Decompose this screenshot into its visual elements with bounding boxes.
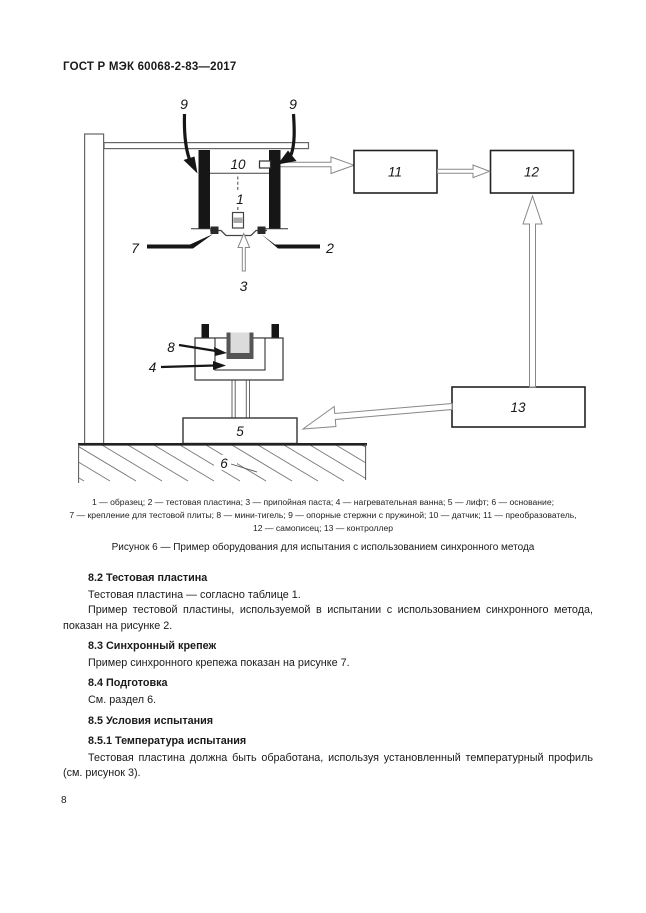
label-10: 10 <box>230 157 246 172</box>
stand-column <box>85 134 104 444</box>
leader-arrow-9-left <box>184 114 190 162</box>
label-9-right: 9 <box>289 96 297 112</box>
label-9-left: 9 <box>180 96 188 112</box>
specimen-band <box>234 218 243 224</box>
leader-line-4 <box>161 366 214 368</box>
section-8-3-paragraph-1: Пример синхронного крепежа показан на ри… <box>63 656 593 671</box>
section-8-4-paragraph-1: См. раздел 6. <box>63 693 593 708</box>
section-8-5-1-paragraph-1: Тестовая пластина должна быть обработана… <box>63 751 593 781</box>
section-8-5-title: 8.5 Условия испытания <box>63 714 593 729</box>
section-8-3-title: 8.3 Синхронный крепеж <box>63 639 593 654</box>
section-8-2-title: 8.2 Тестовая пластина <box>63 571 593 586</box>
label-5: 5 <box>236 424 244 439</box>
leader-arrow-9-right <box>291 114 294 155</box>
section-8-2-paragraph-2: Пример тестовой пластины, используемой в… <box>63 603 593 633</box>
label-11: 11 <box>388 165 402 180</box>
section-8-5-1-title: 8.5.1 Температура испытания <box>63 734 593 749</box>
clamp-left <box>211 227 219 235</box>
label-13: 13 <box>510 400 526 415</box>
label-7: 7 <box>131 240 140 256</box>
label-12: 12 <box>524 165 540 180</box>
label-2: 2 <box>325 240 334 256</box>
leader-arrowhead-9-left <box>184 157 198 174</box>
document-page: ГОСТ Р МЭК 60068-2-83—2017 <box>0 0 646 913</box>
figure-diagram: 9 9 10 1 7 2 3 11 12 13 8 4 5 6 <box>0 0 646 497</box>
label-3: 3 <box>240 278 248 294</box>
clamp-right <box>258 227 266 235</box>
page-number: 8 <box>61 795 67 806</box>
legend-line-1: 1 — образец; 2 — тестовая пластина; 3 — … <box>33 496 613 509</box>
platform-bar <box>104 143 309 149</box>
label-8: 8 <box>167 340 175 355</box>
body-text: 8.2 Тестовая пластина Тестовая пластина … <box>63 566 593 781</box>
sensor-block <box>260 161 271 168</box>
leader-arrow-7 <box>147 234 213 249</box>
legend-line-3: 12 — самописец; 13 — контроллер <box>33 522 613 535</box>
label-6: 6 <box>220 456 228 471</box>
arrow-13-to-5 <box>303 404 452 430</box>
figure-caption: Рисунок 6 — Пример оборудования для испы… <box>0 542 646 553</box>
arrow-11-to-12 <box>438 165 490 178</box>
section-8-4-title: 8.4 Подготовка <box>63 676 593 691</box>
label-4: 4 <box>149 360 157 375</box>
section-8-2-paragraph-1: Тестовая пластина — согласно таблице 1. <box>63 588 593 603</box>
arrow-13-to-12 <box>523 196 542 387</box>
support-rod-left <box>199 150 211 229</box>
legend-line-2: 7 — крепление для тестовой плиты; 8 — ми… <box>33 509 613 522</box>
solder-feed-arrow <box>238 234 250 272</box>
label-1: 1 <box>236 192 244 207</box>
leader-arrow-2 <box>261 234 320 249</box>
mini-crucible-cavity <box>231 333 250 354</box>
bath-post-right <box>272 324 280 338</box>
bath-post-left <box>202 324 210 338</box>
figure-legend: 1 — образец; 2 — тестовая пластина; 3 — … <box>33 496 613 535</box>
